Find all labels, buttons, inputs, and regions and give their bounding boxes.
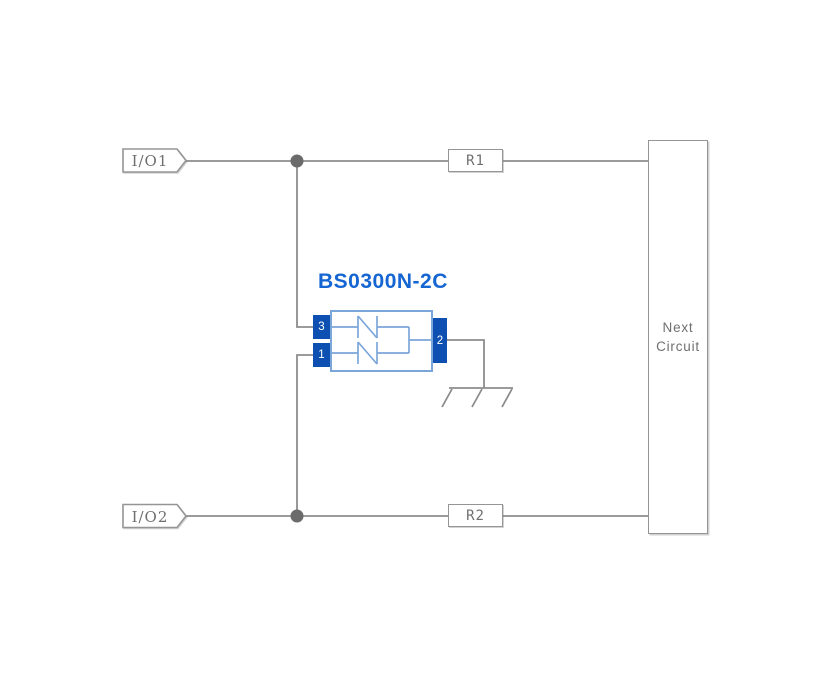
component-pin-3: 3 bbox=[313, 315, 330, 339]
circuit-diagram: I/O1 I/O2 R1 R2 Next Circuit BS0300N-2C … bbox=[0, 0, 832, 675]
next-circuit-block: Next Circuit bbox=[648, 140, 708, 534]
resistor-r1: R1 bbox=[448, 149, 503, 172]
junction-dot-top bbox=[291, 155, 304, 168]
ground-icon bbox=[442, 388, 513, 407]
component-pin-2: 2 bbox=[433, 318, 447, 363]
junction-dot-bottom bbox=[291, 510, 304, 523]
resistor-r2: R2 bbox=[448, 504, 503, 527]
component-pin-1: 1 bbox=[313, 343, 330, 367]
io2-terminal-label: I/O2 bbox=[123, 505, 177, 528]
branch-wire-pin1 bbox=[297, 355, 313, 516]
io1-terminal-label: I/O1 bbox=[123, 149, 177, 172]
next-circuit-label-line1: Next bbox=[663, 318, 694, 337]
branch-wire-pin3 bbox=[297, 161, 313, 327]
component-part-number: BS0300N-2C bbox=[318, 270, 478, 296]
pin2-ground-wire bbox=[447, 340, 484, 388]
tvs-component-body bbox=[330, 310, 433, 372]
next-circuit-label-line2: Circuit bbox=[656, 337, 700, 356]
